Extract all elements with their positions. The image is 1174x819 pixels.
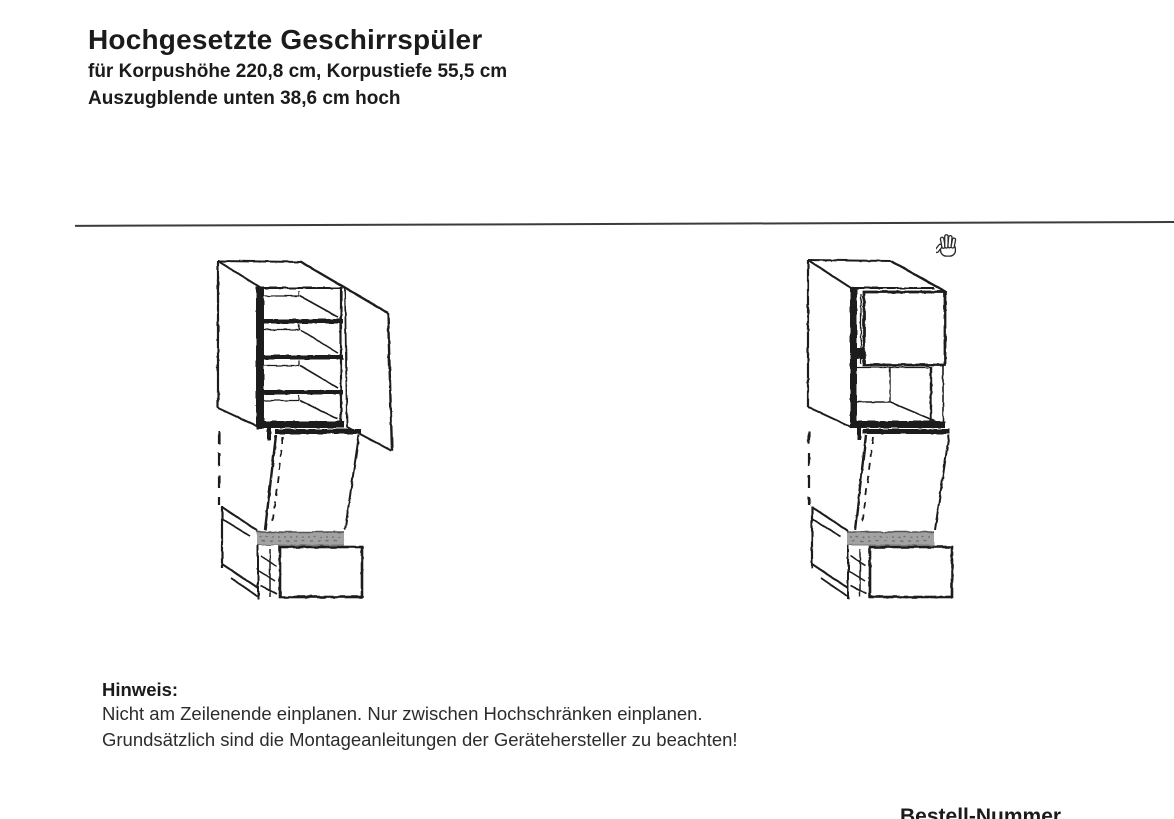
note-line-1: Nicht am Zeilenende einplanen. Nur zwisc…: [102, 703, 703, 725]
catalog-page: Hochgesetzte Geschirrspüler für Korpushö…: [0, 0, 1174, 819]
diagram-tall-cabinet-appliance-door: [808, 260, 952, 599]
hand-cursor-icon: [936, 231, 960, 261]
note-heading: Hinweis:: [102, 679, 178, 701]
note-line-2: Grundsätzlich sind die Montageanleitunge…: [102, 729, 738, 751]
diagram-tall-cabinet-open-shelves: [218, 261, 392, 599]
order-number-label: Bestell-Nummer: [900, 805, 1061, 819]
